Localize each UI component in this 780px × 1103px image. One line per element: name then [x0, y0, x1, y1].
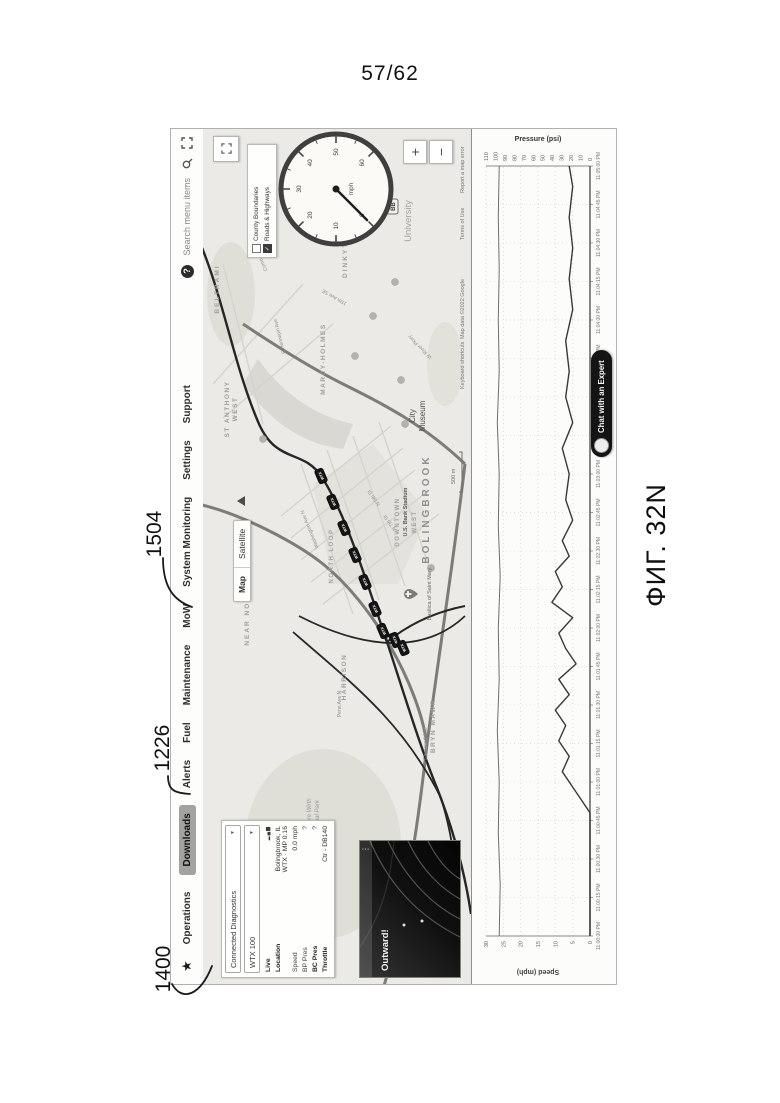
svg-text:10: 10: [553, 941, 559, 947]
expand-icon: [221, 144, 232, 155]
time-tick-label: 11:00:45 PM: [596, 807, 602, 835]
nav-item-settings[interactable]: Settings: [182, 440, 193, 479]
location-value: Bolingbrook, IL WTX · MP 0.16: [275, 826, 289, 872]
zoom-in-button[interactable]: +: [403, 140, 427, 164]
nav-item-maintenance[interactable]: Maintenance: [182, 645, 193, 706]
time-tick-label: 11:02:00 PM: [596, 614, 602, 642]
svg-text:40: 40: [307, 159, 314, 167]
time-tick-label: 11:05:00 PM: [596, 152, 602, 180]
nav-item-alerts[interactable]: Alerts: [182, 760, 193, 788]
svg-text:20: 20: [519, 941, 525, 947]
unchecked-checkbox-icon[interactable]: [252, 244, 261, 253]
checked-checkbox-icon[interactable]: ✓: [263, 244, 272, 253]
time-tick-label: 11:01:15 PM: [596, 730, 602, 758]
diagnostics-panel: Connected Diagnostics ▼ WTX 100 ▼ Live ▂…: [221, 820, 335, 978]
map-toggle-satellite[interactable]: Satellite: [234, 521, 250, 567]
time-tick-label: 11:01:30 PM: [596, 691, 602, 719]
map-pegman-triangle: [237, 496, 245, 506]
pressure-axis-label: Pressure (psi): [515, 136, 562, 143]
attribution-keyboard-shortcuts[interactable]: Keyboard shortcuts: [460, 341, 466, 389]
svg-text:5: 5: [571, 941, 577, 944]
speed-gauge: 0102030405060mph: [281, 134, 391, 244]
sheet-number: 57/62: [0, 62, 780, 86]
chat-with-expert-button[interactable]: Chat with an Expert: [591, 350, 612, 457]
time-tick-label: 11:00:00 PM: [596, 922, 602, 950]
time-tick-label: 11:04:00 PM: [596, 306, 602, 334]
map-fullscreen-button[interactable]: [213, 136, 239, 162]
attribution-terms-of-use[interactable]: Terms of Use: [460, 208, 466, 240]
unit-select[interactable]: WTX 100 ▼: [244, 825, 260, 973]
map-label-west: WEST: [412, 510, 418, 533]
time-tick-label: 11:02:15 PM: [596, 576, 602, 604]
map-type-toggle: Map Satellite: [233, 520, 251, 602]
svg-text:10: 10: [579, 155, 585, 161]
svg-text:50: 50: [541, 155, 547, 161]
ref-numeral-1504: 1504: [143, 499, 169, 569]
map-label-bolingbrook: BOLINGBROOK: [421, 454, 432, 563]
svg-text:20: 20: [307, 211, 314, 219]
map-label-beltrami: BELTRAMI: [214, 264, 221, 313]
map-label-downtown: DOWNTOWN: [395, 497, 401, 546]
nav-items: OperationsDownloadsAlertsFuelMaintenance…: [179, 385, 196, 944]
nav-item-mow[interactable]: MoW: [182, 604, 193, 628]
favorites-star-icon[interactable]: ★: [179, 960, 195, 972]
live-label: Live: [265, 958, 272, 972]
chevron-down-icon: ▼: [230, 830, 236, 835]
diag-row-speed: Speed0.0 mph: [290, 825, 300, 973]
ref-numeral-1400: 1400: [152, 934, 178, 1004]
attribution-map-data-google[interactable]: Map data ©2022 Google: [459, 279, 466, 339]
map-label-bryn-mawr: BRYN MAWR: [430, 699, 437, 753]
fleet-select[interactable]: Connected Diagnostics ▼: [225, 825, 241, 973]
svg-text:30: 30: [560, 155, 566, 161]
map-toggle-map[interactable]: Map: [234, 567, 250, 601]
video-title: Outward!: [380, 929, 391, 971]
svg-text:110: 110: [484, 152, 490, 161]
time-tick-label: 11:00:30 PM: [596, 845, 602, 873]
video-header-strip: [360, 841, 372, 977]
svg-text:BB: BB: [391, 202, 397, 211]
location-row: Location Bolingbrook, IL WTX · MP 0.16: [273, 825, 290, 973]
svg-text:30: 30: [484, 941, 490, 947]
live-video-thumbnail[interactable]: ⋮ Outward!: [359, 840, 461, 978]
map-label-university: University: [403, 200, 414, 242]
time-tick-label: 11:01:45 PM: [596, 653, 602, 681]
svg-text:15: 15: [536, 941, 542, 947]
diag-row-throttle: ThrottleCtr - DB140: [320, 825, 330, 973]
rotated-screenshot: ★ OperationsDownloadsAlertsFuelMaintenan…: [170, 130, 615, 985]
series-pressure: [497, 166, 500, 936]
location-label: Location: [275, 944, 282, 972]
top-nav-bar: ★ OperationsDownloadsAlertsFuelMaintenan…: [171, 129, 204, 984]
fleet-select-value: Connected Diagnostics: [229, 891, 238, 968]
chevron-down-icon: ▼: [249, 830, 255, 835]
diagnostic-rows: Speed0.0 mphBP Pres?BC Pres?ThrottleCtr …: [290, 825, 330, 973]
map-label-basilica-of-saint-mary: Basilica of Saint Mary: [427, 567, 433, 620]
time-tick-label: 11:04:45 PM: [596, 191, 602, 219]
svg-text:25: 25: [501, 941, 507, 947]
layer-toggle-county-boundaries[interactable]: County Boundaries: [251, 149, 262, 253]
telemetry-chart-panel: 11:00:00 PM11:00:15 PM11:00:30 PM11:00:4…: [471, 129, 617, 984]
svg-text:mph: mph: [348, 182, 355, 195]
menu-search-input[interactable]: Search menu items: [182, 178, 192, 256]
help-icon[interactable]: ?: [181, 265, 194, 278]
chat-avatar-icon: [594, 438, 609, 453]
nav-item-downloads[interactable]: Downloads: [179, 805, 196, 874]
signal-bars-icon: ▂▄▆: [265, 826, 271, 840]
figure-caption: ФИГ. 32N: [641, 463, 675, 627]
svg-text:90: 90: [503, 155, 509, 161]
kebab-menu-icon[interactable]: ⋮: [361, 845, 370, 853]
park-area: [427, 322, 463, 406]
svg-text:80: 80: [512, 155, 518, 161]
svg-text:100: 100: [493, 152, 499, 161]
fullscreen-icon[interactable]: [181, 137, 193, 149]
zoom-out-button[interactable]: −: [429, 140, 453, 164]
time-tick-label: 11:02:45 PM: [596, 499, 602, 527]
video-frame-art: [360, 841, 460, 977]
svg-text:60: 60: [531, 155, 537, 161]
map-label-penn-ave-n: Penn Ave N: [337, 690, 343, 717]
svg-text:70: 70: [522, 155, 528, 161]
map-label-glenwood-ave: Glenwood Ave: [423, 728, 429, 760]
time-tick-label: 11:04:30 PM: [596, 229, 602, 257]
svg-text:0: 0: [588, 158, 594, 161]
map-label-u-s-bank-stadium: U.S. Bank Stadium: [403, 487, 409, 536]
svg-text:40: 40: [550, 155, 556, 161]
svg-text:10: 10: [333, 222, 340, 230]
svg-text:0: 0: [588, 941, 594, 944]
svg-text:20: 20: [569, 155, 575, 161]
time-tick-label: 11:04:15 PM: [596, 268, 602, 296]
svg-text:60: 60: [359, 159, 366, 167]
nav-item-operations[interactable]: Operations: [182, 892, 193, 945]
telematics-app-window: ★ OperationsDownloadsAlertsFuelMaintenan…: [170, 128, 617, 985]
map-label-marcy-holmes: MARCY-HOLMES: [320, 323, 327, 394]
attribution-report-a-map-error[interactable]: Report a map error: [460, 146, 466, 193]
map-label-north-loop: NORTH LOOP: [329, 529, 335, 584]
patent-sheet: 57/62 ★ OperationsDownloadsAlertsFuelMai…: [0, 0, 780, 1103]
svg-text:50: 50: [333, 148, 340, 156]
nav-item-system-monitoring[interactable]: System Monitoring: [182, 497, 193, 587]
time-tick-label: 11:00:15 PM: [596, 884, 602, 912]
live-row: Live ▂▄▆: [263, 825, 273, 973]
svg-text:500 m: 500 m: [451, 468, 457, 484]
layer-toggle-roads-highways[interactable]: ✓Roads & Highways: [262, 149, 273, 253]
time-tick-label: 11:01:00 PM: [596, 768, 602, 796]
time-tick-label: 11:02:30 PM: [596, 537, 602, 565]
map-layers-card: County Boundaries✓Roads & Highways: [247, 144, 277, 258]
time-tick-label: 11:03:00 PM: [596, 460, 602, 488]
ref-numeral-1226: 1226: [151, 713, 177, 783]
diag-row-bp-pres: BP Pres?: [300, 825, 310, 973]
diag-row-bc-pres: BC Pres?: [310, 825, 320, 973]
unit-select-value: WTX 100: [248, 937, 257, 968]
nav-item-support[interactable]: Support: [182, 385, 193, 423]
speed-axis-label: Speed (mph): [517, 968, 559, 975]
nav-item-fuel[interactable]: Fuel: [182, 722, 193, 743]
nav-right-tools: ? Search menu items: [171, 137, 203, 278]
chat-label: Chat with an Expert: [597, 360, 606, 433]
svg-text:30: 30: [296, 185, 303, 193]
search-icon[interactable]: [182, 158, 193, 169]
